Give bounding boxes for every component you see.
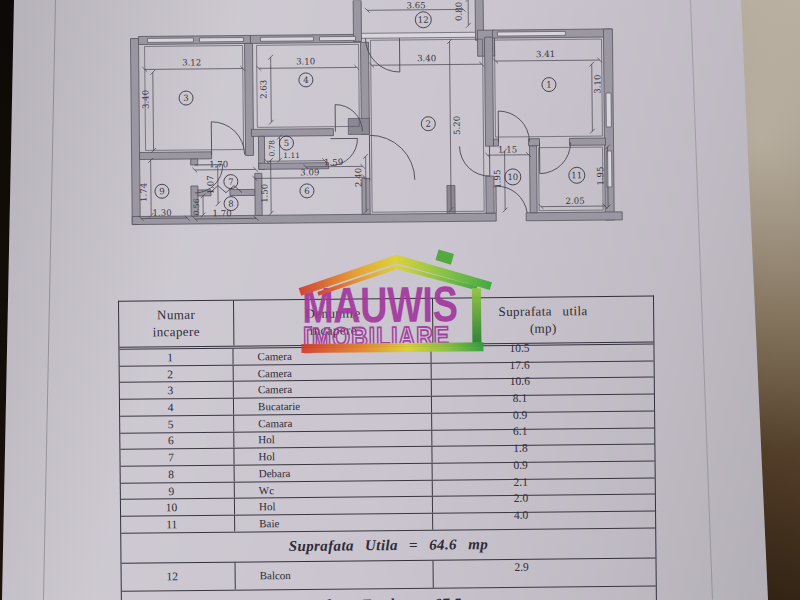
header-text: incapere (234, 321, 432, 339)
dimension-label: 3.10 (296, 56, 315, 66)
area-value: 1.8 (513, 442, 527, 454)
room-number-label: 1 (546, 80, 552, 90)
row-number-cell: 2 (120, 365, 234, 382)
room-number-label: 7 (228, 177, 234, 187)
room-area-cell: 2.1 (433, 478, 655, 496)
summary-text: Suprafata Utila = 64.6 mp (289, 536, 489, 555)
room-name-cell: Camara (234, 414, 432, 432)
table-header-row: Numar incapere Denumire incapere Suprafa… (119, 297, 653, 350)
room-area-table: Numar incapere Denumire incapere Suprafa… (118, 296, 657, 600)
room-area-cell: 2.9 (434, 558, 656, 587)
dimension-label: 3.41 (536, 49, 555, 59)
area-value: 2.1 (514, 475, 528, 487)
room-area-cell: 10.5 (431, 345, 653, 363)
area-value: 4.0 (514, 509, 528, 521)
room-area-cell: 0.9 (432, 411, 654, 429)
room-number-label: 9 (159, 186, 165, 196)
dimension-line (592, 64, 593, 131)
header-text: Denumire (234, 305, 432, 323)
dimension-label: 0.56 (192, 198, 201, 215)
area-value: 6.1 (513, 425, 527, 437)
room-name-cell: Camera (234, 363, 432, 381)
room-name-cell: Balcon (236, 561, 434, 590)
header-text: Numar (119, 307, 233, 324)
room-number-label: 5 (284, 138, 290, 148)
dimension-label: 5.20 (452, 116, 462, 135)
dimension-label: 3.65 (407, 0, 426, 10)
row-number-cell: 9 (121, 482, 235, 499)
room-number-label: 12 (418, 15, 429, 25)
dimension-label: 1.59 (324, 157, 343, 167)
dimension-line (267, 161, 325, 162)
table-rows: 1Camera10.52Camera17.63Camera10.64Bucata… (119, 345, 655, 534)
dimension-line (255, 177, 365, 178)
area-value: 17.6 (510, 358, 530, 370)
photo-of-floorplan-document: { "floorplan": { "rooms": [ {"n":"1","x"… (0, 0, 800, 600)
dimension-line (541, 206, 605, 207)
area-value: 8.1 (513, 392, 527, 404)
room-name-cell: Debara (235, 464, 433, 482)
dimension-label: 3.40 (417, 53, 436, 63)
row-number-cell: 10 (121, 499, 235, 516)
room-name-cell: Hol (234, 447, 432, 465)
room-name-cell: Bucatarie (234, 397, 432, 415)
dimension-label: 0.78 (267, 140, 276, 157)
dimension-label: 1.95 (492, 169, 502, 188)
row-number-cell: 12 (122, 562, 236, 590)
row-number-cell: 11 (121, 516, 235, 533)
row-number-cell: 5 (120, 415, 234, 432)
room-number-label: 10 (507, 172, 518, 182)
row-number-cell: 7 (120, 449, 234, 466)
room-name-cell: Hol (235, 497, 433, 515)
dimension-line (145, 68, 243, 69)
room-name-cell: Camera (233, 347, 431, 365)
row-number-cell: 6 (120, 432, 234, 449)
dimension-label: 1.70 (209, 159, 228, 169)
dimension-label: 1.30 (153, 208, 172, 218)
dimension-label: 0.80 (454, 2, 464, 21)
dimension-label: 1.70 (213, 208, 232, 218)
dimension-label: 1.74 (138, 182, 148, 202)
room-area-cell: 6.1 (432, 428, 654, 446)
room-area-cell: 17.6 (432, 361, 654, 379)
floor-plan-drawing: 3.650.803.123.403.102.633.403.413.105.20… (0, 0, 799, 249)
room-number-label: 6 (304, 186, 310, 196)
dimension-label: 2.63 (258, 80, 268, 99)
area-value: 10.5 (509, 342, 529, 354)
area-value: 10.6 (510, 375, 530, 387)
area-value: 2.0 (514, 492, 528, 504)
dimension-label: 1.95 (595, 166, 605, 185)
room-number-label: 8 (228, 199, 234, 209)
dimension-line (496, 60, 600, 61)
dimension-line (505, 151, 506, 210)
header-suprafata-utila: Suprafata utila (mp) (433, 297, 653, 344)
dimension-line (259, 67, 357, 68)
dimension-label: 1.07 (205, 175, 215, 194)
room-name-cell: Camera (234, 380, 432, 398)
house-roof-icon (300, 249, 491, 294)
room-number-label: 2 (426, 119, 432, 129)
dimension-label: 2.40 (353, 168, 363, 187)
row-number-cell: 1 (119, 349, 233, 366)
dimension-line (151, 160, 152, 215)
header-denumire-incapere: Denumire incapere (234, 299, 433, 346)
area-value: 0.9 (513, 459, 527, 471)
room-name-cell: Wc (235, 480, 433, 498)
dimension-label: 1.15 (498, 144, 517, 154)
room-area-cell: 8.1 (432, 395, 654, 413)
dimension-label: 3.40 (140, 90, 150, 109)
dimension-label: 2.05 (565, 196, 584, 206)
dimension-line (271, 57, 272, 122)
dimension-label: 3.12 (182, 57, 201, 67)
dimension-label: 3.09 (300, 167, 319, 177)
area-value: 0.9 (513, 409, 527, 421)
room-number-label: 4 (303, 75, 309, 85)
row-number-cell: 3 (120, 382, 234, 399)
room-area-cell: 1.8 (432, 445, 654, 463)
room-name-cell: Baie (235, 514, 433, 532)
dimension-line (372, 64, 482, 65)
dimension-label: 3.10 (592, 74, 602, 93)
header-text: incapere (119, 323, 233, 340)
row-number-cell: 4 (120, 399, 234, 416)
room-area-cell: 10.6 (432, 378, 654, 396)
area-value: 2.9 (514, 561, 528, 573)
room-number-label: 3 (183, 93, 189, 103)
header-numar-incapere: Numar incapere (119, 301, 234, 347)
row-number-cell: 8 (121, 466, 235, 483)
dimension-label: 1.50 (259, 184, 269, 203)
header-text: (mp) (433, 319, 653, 337)
document-content: 3.650.803.123.403.102.633.403.413.105.20… (0, 0, 800, 600)
room-area-cell: 0.9 (433, 462, 655, 480)
room-number-label: 11 (571, 170, 582, 180)
dimension-line (195, 169, 256, 170)
summary-text: Suprafata Totala = 67.5 mp (285, 596, 493, 600)
dimension-label: 1.11 (283, 151, 300, 160)
room-name-cell: Hol (234, 430, 432, 448)
room-area-cell: 4.0 (433, 512, 655, 530)
room-area-cell: 2.0 (433, 495, 655, 513)
dimension-line (153, 72, 154, 150)
paper-sheet: 3.650.803.123.403.102.633.403.413.105.20… (0, 0, 800, 600)
